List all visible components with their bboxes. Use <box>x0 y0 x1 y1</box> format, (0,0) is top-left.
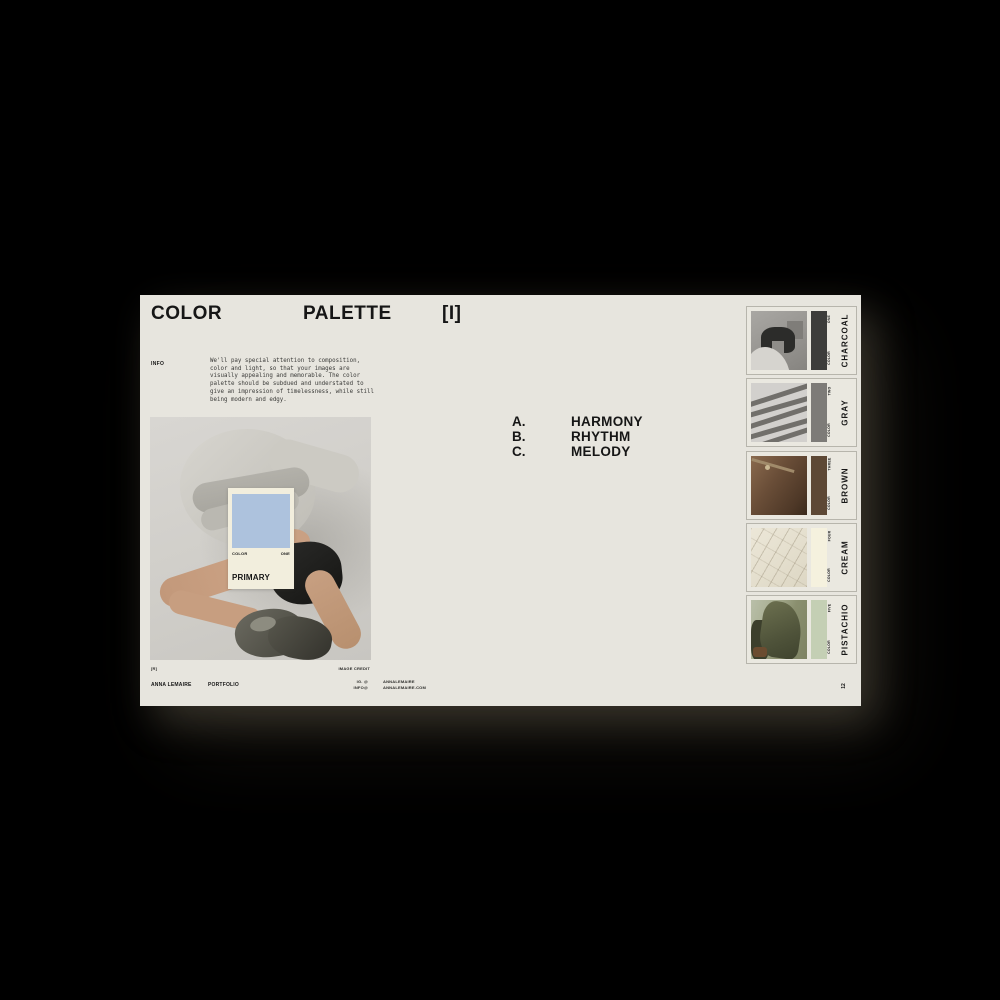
photo-wood-shape <box>753 647 767 657</box>
primary-swatch-name: PRIMARY <box>232 573 270 582</box>
swatch-series-text: COLOR <box>827 423 831 437</box>
swatch-card-cream: FOUR COLOR CREAM <box>746 523 857 592</box>
page-number: 12 <box>838 680 850 692</box>
swatch-name-text: BROWN <box>841 467 850 503</box>
swatch-name-text: CREAM <box>841 540 850 574</box>
swatch-photo-cream <box>751 528 807 587</box>
primary-chip-labels: COLOR ONE <box>232 551 290 556</box>
list-term: MELODY <box>571 444 631 459</box>
image-credit-label: IMAGE CREDIT <box>290 666 370 671</box>
swatch-card-gray: TWO COLOR GRAY <box>746 378 857 447</box>
principles-list: A. HARMONY B. RHYTHM C. MELODY <box>512 414 643 459</box>
info-label: INFO <box>151 361 164 367</box>
list-term: HARMONY <box>571 414 643 429</box>
info-paragraph: We'll pay special attention to compositi… <box>210 358 378 404</box>
swatch-number-text: FOUR <box>827 531 831 542</box>
swatch-number-text: FIVE <box>827 604 831 613</box>
website-value[interactable]: ANNALEMAIRE.COM <box>383 685 426 691</box>
primary-series-label: COLOR <box>232 551 247 556</box>
swatch-name: CREAM <box>833 524 857 591</box>
swatch-series-text: COLOR <box>827 496 831 510</box>
page-title-word-color: COLOR <box>151 303 222 325</box>
list-item: C. MELODY <box>512 444 643 459</box>
swatch-series-text: COLOR <box>827 351 831 365</box>
page-title-word-palette: PALETTE <box>303 303 392 325</box>
swatch-number-text: TWO <box>827 387 831 396</box>
credit-mark: [R] <box>151 666 157 671</box>
list-letter: C. <box>512 444 571 459</box>
swatch-number-text: THREE <box>827 458 831 471</box>
primary-color-chip <box>232 494 290 548</box>
list-letter: B. <box>512 429 571 444</box>
swatch-photo-pistachio <box>751 600 807 659</box>
swatch-series-text: COLOR <box>827 640 831 654</box>
swatch-photo-gray <box>751 383 807 442</box>
swatch-card-pistachio: FIVE COLOR PISTACHIO <box>746 595 857 664</box>
photo-strap-shape <box>751 458 794 473</box>
swatch-series-text: COLOR <box>827 568 831 582</box>
swatch-name-text: GRAY <box>841 399 850 425</box>
swatch-number-text: ONE <box>827 315 831 323</box>
list-letter: A. <box>512 414 571 429</box>
photo-buckle-shape <box>765 465 770 470</box>
swatch-name: GRAY <box>833 379 857 446</box>
swatch-name: PISTACHIO <box>833 596 857 663</box>
info-email-label: INFO@ <box>298 685 368 691</box>
primary-swatch-card: COLOR ONE PRIMARY <box>228 488 294 589</box>
portfolio-slide: COLOR PALETTE [I] INFO We'll pay special… <box>140 295 861 706</box>
list-item: A. HARMONY <box>512 414 643 429</box>
list-item: B. RHYTHM <box>512 429 643 444</box>
footer-document: PORTFOLIO <box>208 682 239 688</box>
footer-contact-values: ANNALEMAIRE ANNALEMAIRE.COM <box>383 679 426 690</box>
swatch-name-text: CHARCOAL <box>841 314 850 368</box>
swatch-name: BROWN <box>833 452 857 519</box>
swatch-card-charcoal: ONE COLOR CHARCOAL <box>746 306 857 375</box>
page-number-text: 12 <box>841 683 847 689</box>
swatch-card-brown: THREE COLOR BROWN <box>746 451 857 520</box>
primary-number-label: ONE <box>281 551 290 556</box>
list-term: RHYTHM <box>571 429 631 444</box>
swatch-photo-charcoal <box>751 311 807 370</box>
swatch-name: CHARCOAL <box>833 307 857 374</box>
page-index-label: [I] <box>442 303 461 325</box>
swatch-photo-brown <box>751 456 807 515</box>
footer-author: ANNA LEMAIRE <box>151 682 192 688</box>
footer-contact-labels: IG. @ INFO@ <box>298 679 368 690</box>
swatch-name-text: PISTACHIO <box>841 604 850 656</box>
